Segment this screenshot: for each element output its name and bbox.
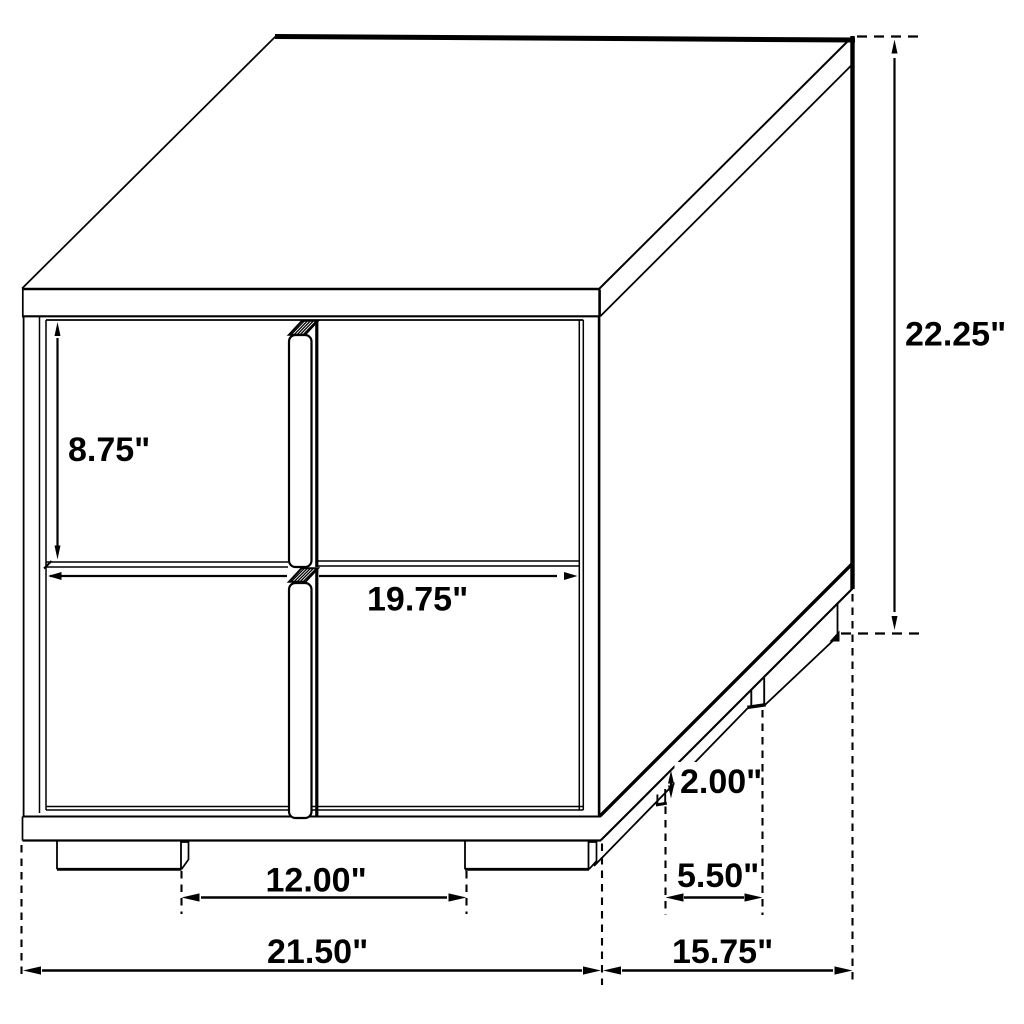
svg-text:19.75": 19.75" — [367, 581, 468, 619]
svg-text:5.50": 5.50" — [677, 857, 759, 895]
svg-text:12.00": 12.00" — [266, 862, 367, 900]
svg-text:22.25": 22.25" — [905, 316, 1006, 354]
svg-text:21.50": 21.50" — [267, 933, 368, 971]
svg-text:15.75": 15.75" — [672, 933, 773, 971]
svg-text:8.75": 8.75" — [68, 431, 150, 469]
svg-text:2.00": 2.00" — [680, 763, 762, 801]
